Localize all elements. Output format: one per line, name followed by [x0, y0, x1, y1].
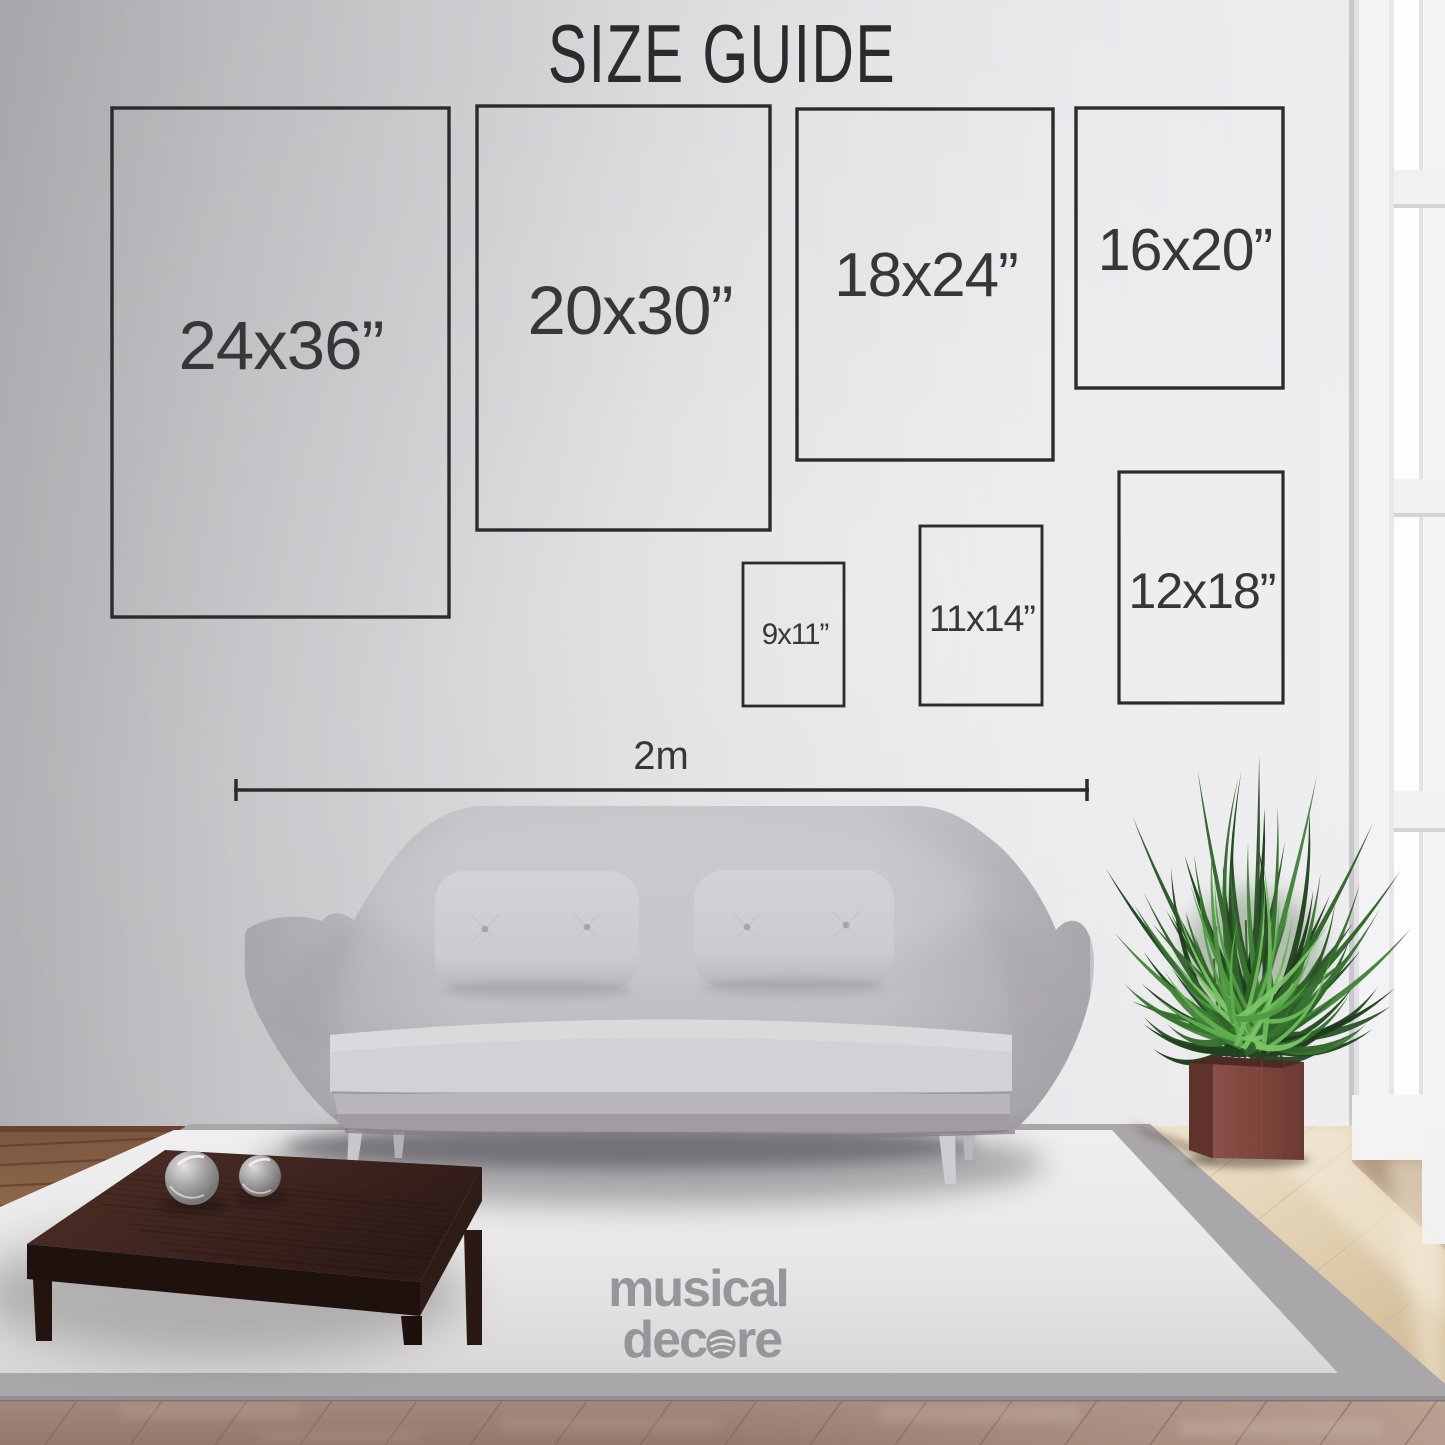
svg-text:9x11”: 9x11” [762, 618, 829, 651]
svg-text:18x24”: 18x24” [834, 241, 1018, 310]
svg-text:2m: 2m [633, 734, 689, 778]
svg-text:24x36”: 24x36” [179, 307, 384, 384]
svg-text:musical: musical [608, 1260, 788, 1318]
svg-text:16x20”: 16x20” [1098, 217, 1272, 283]
svg-text:11x14”: 11x14” [929, 597, 1035, 639]
svg-text:12x18”: 12x18” [1129, 563, 1276, 619]
svg-text:20x30”: 20x30” [528, 272, 733, 349]
svg-text:dec: dec [622, 1311, 707, 1369]
svg-text:re: re [736, 1311, 782, 1369]
svg-text:SIZE GUIDE: SIZE GUIDE [548, 8, 896, 100]
